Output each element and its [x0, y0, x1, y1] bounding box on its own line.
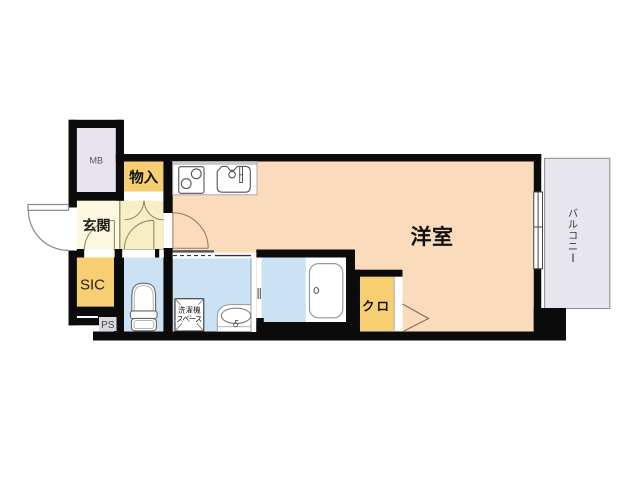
svg-text:コ: コ — [568, 231, 578, 242]
svg-text:ル: ル — [568, 220, 578, 231]
svg-text:玄関: 玄関 — [83, 218, 111, 234]
svg-text:バ: バ — [568, 208, 578, 220]
svg-text:洗濯機: 洗濯機 — [178, 305, 201, 315]
svg-text:物入: 物入 — [129, 169, 158, 187]
svg-text:MB: MB — [90, 156, 104, 166]
svg-text:クロ: クロ — [362, 300, 391, 314]
svg-text:ニ: ニ — [568, 242, 578, 253]
svg-text:SIC: SIC — [80, 277, 105, 294]
svg-text:洋室: 洋室 — [411, 225, 454, 249]
svg-text:スペース: スペース — [176, 315, 202, 324]
svg-text:PS: PS — [101, 320, 115, 331]
